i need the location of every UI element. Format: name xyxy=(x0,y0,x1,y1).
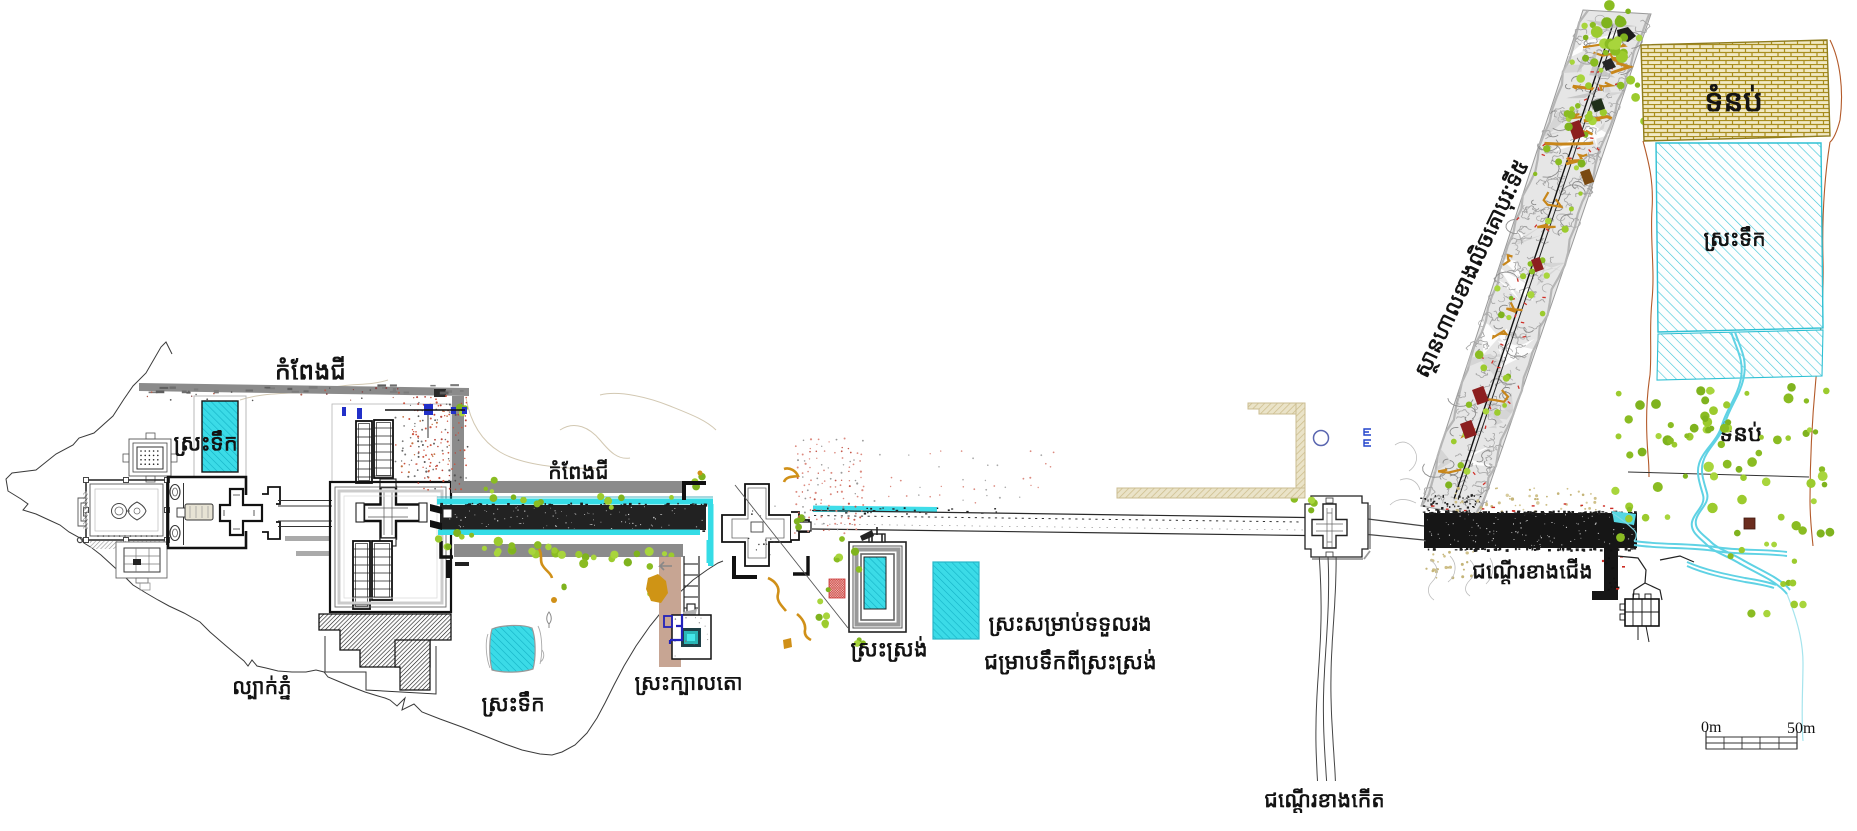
svg-text:50m: 50m xyxy=(1787,720,1816,737)
svg-text:0m: 0m xyxy=(1701,719,1722,736)
